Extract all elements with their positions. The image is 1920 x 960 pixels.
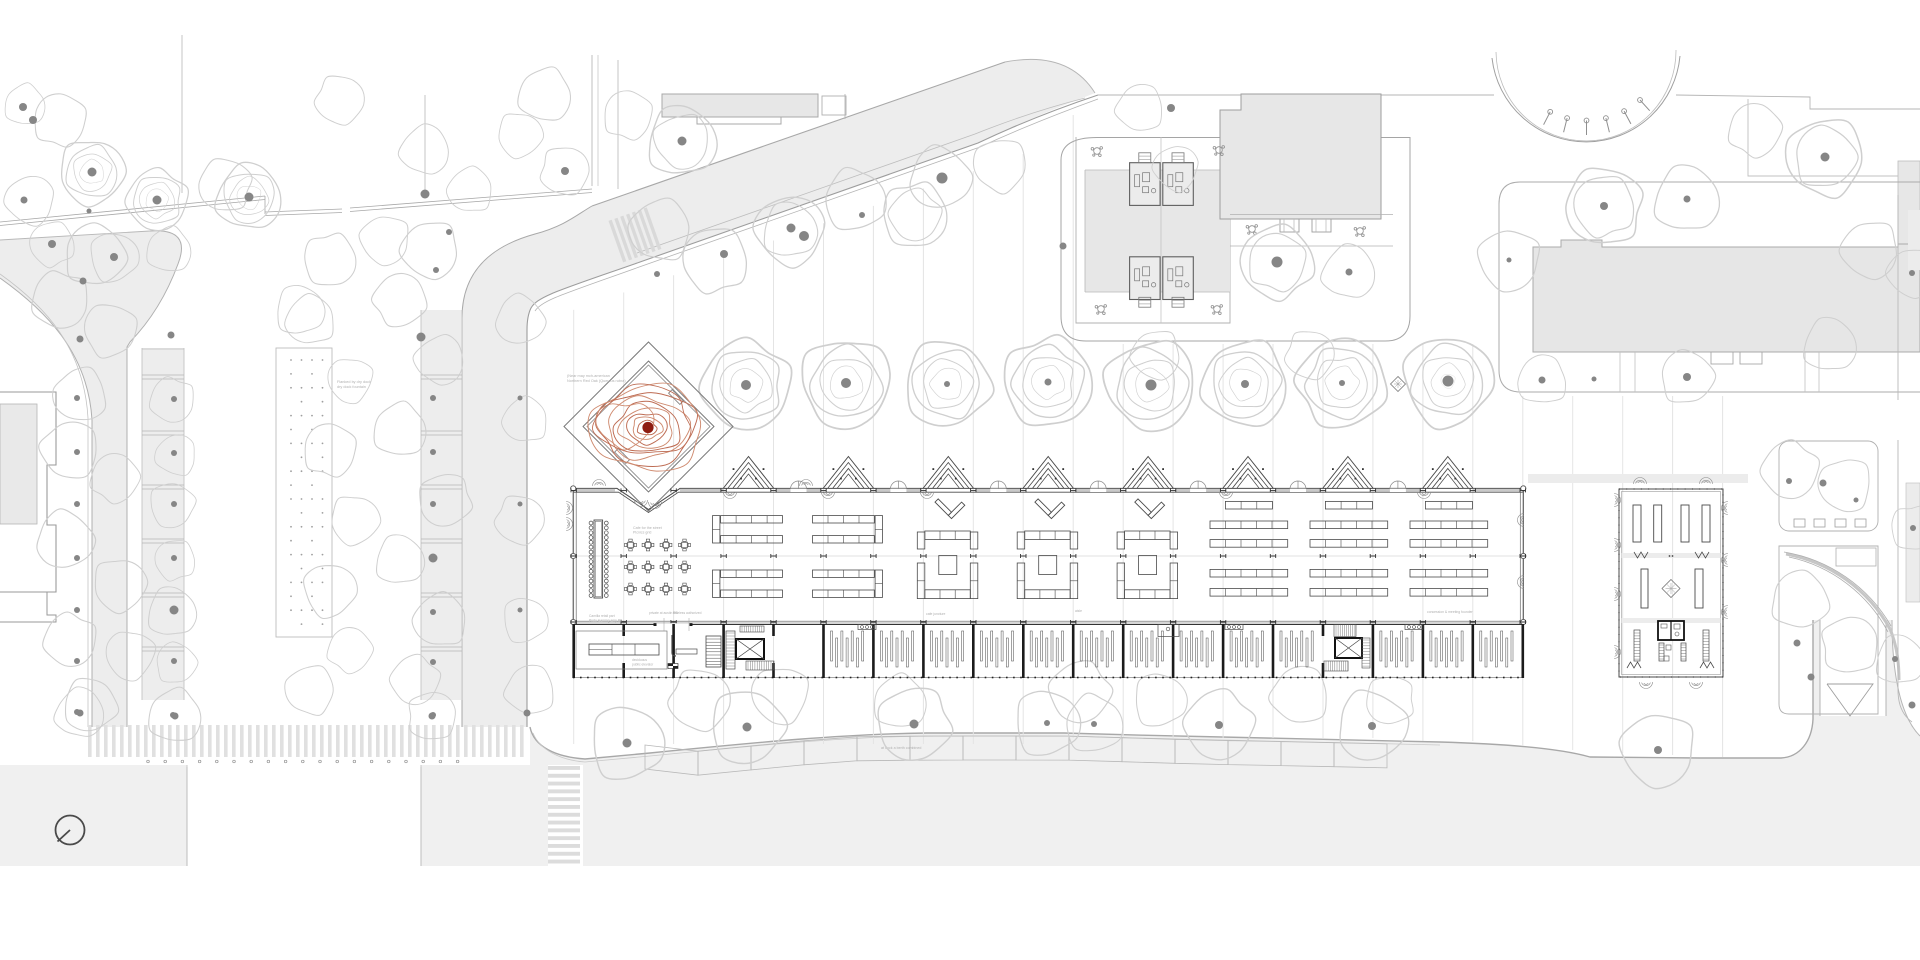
svg-text:public elevator: public elevator bbox=[632, 663, 654, 667]
svg-text:Picnics grid: Picnics grid bbox=[633, 531, 651, 535]
svg-text:deciduous: deciduous bbox=[632, 658, 647, 662]
svg-text:concession & meeting founder: concession & meeting founder bbox=[1427, 610, 1473, 614]
svg-text:Flanked by dry dock: Flanked by dry dock bbox=[337, 380, 371, 384]
svg-text:aisle: aisle bbox=[1075, 609, 1082, 613]
svg-text:(Near may mch-american: (Near may mch-american bbox=[567, 374, 610, 378]
svg-text:Proto learning amp RB: Proto learning amp RB bbox=[589, 619, 623, 623]
svg-text:dry dock fountain: dry dock fountain bbox=[337, 385, 366, 389]
svg-text:Cafe for the street: Cafe for the street bbox=[633, 526, 662, 530]
svg-text:Camilla retail part: Camilla retail part bbox=[589, 614, 615, 618]
svg-text:timeless authorized: timeless authorized bbox=[673, 611, 702, 615]
svg-text:cafe juncture: cafe juncture bbox=[926, 612, 946, 616]
svg-text:Northern Red Oak (Quercus rubr: Northern Red Oak (Quercus rubra) bbox=[567, 379, 626, 383]
